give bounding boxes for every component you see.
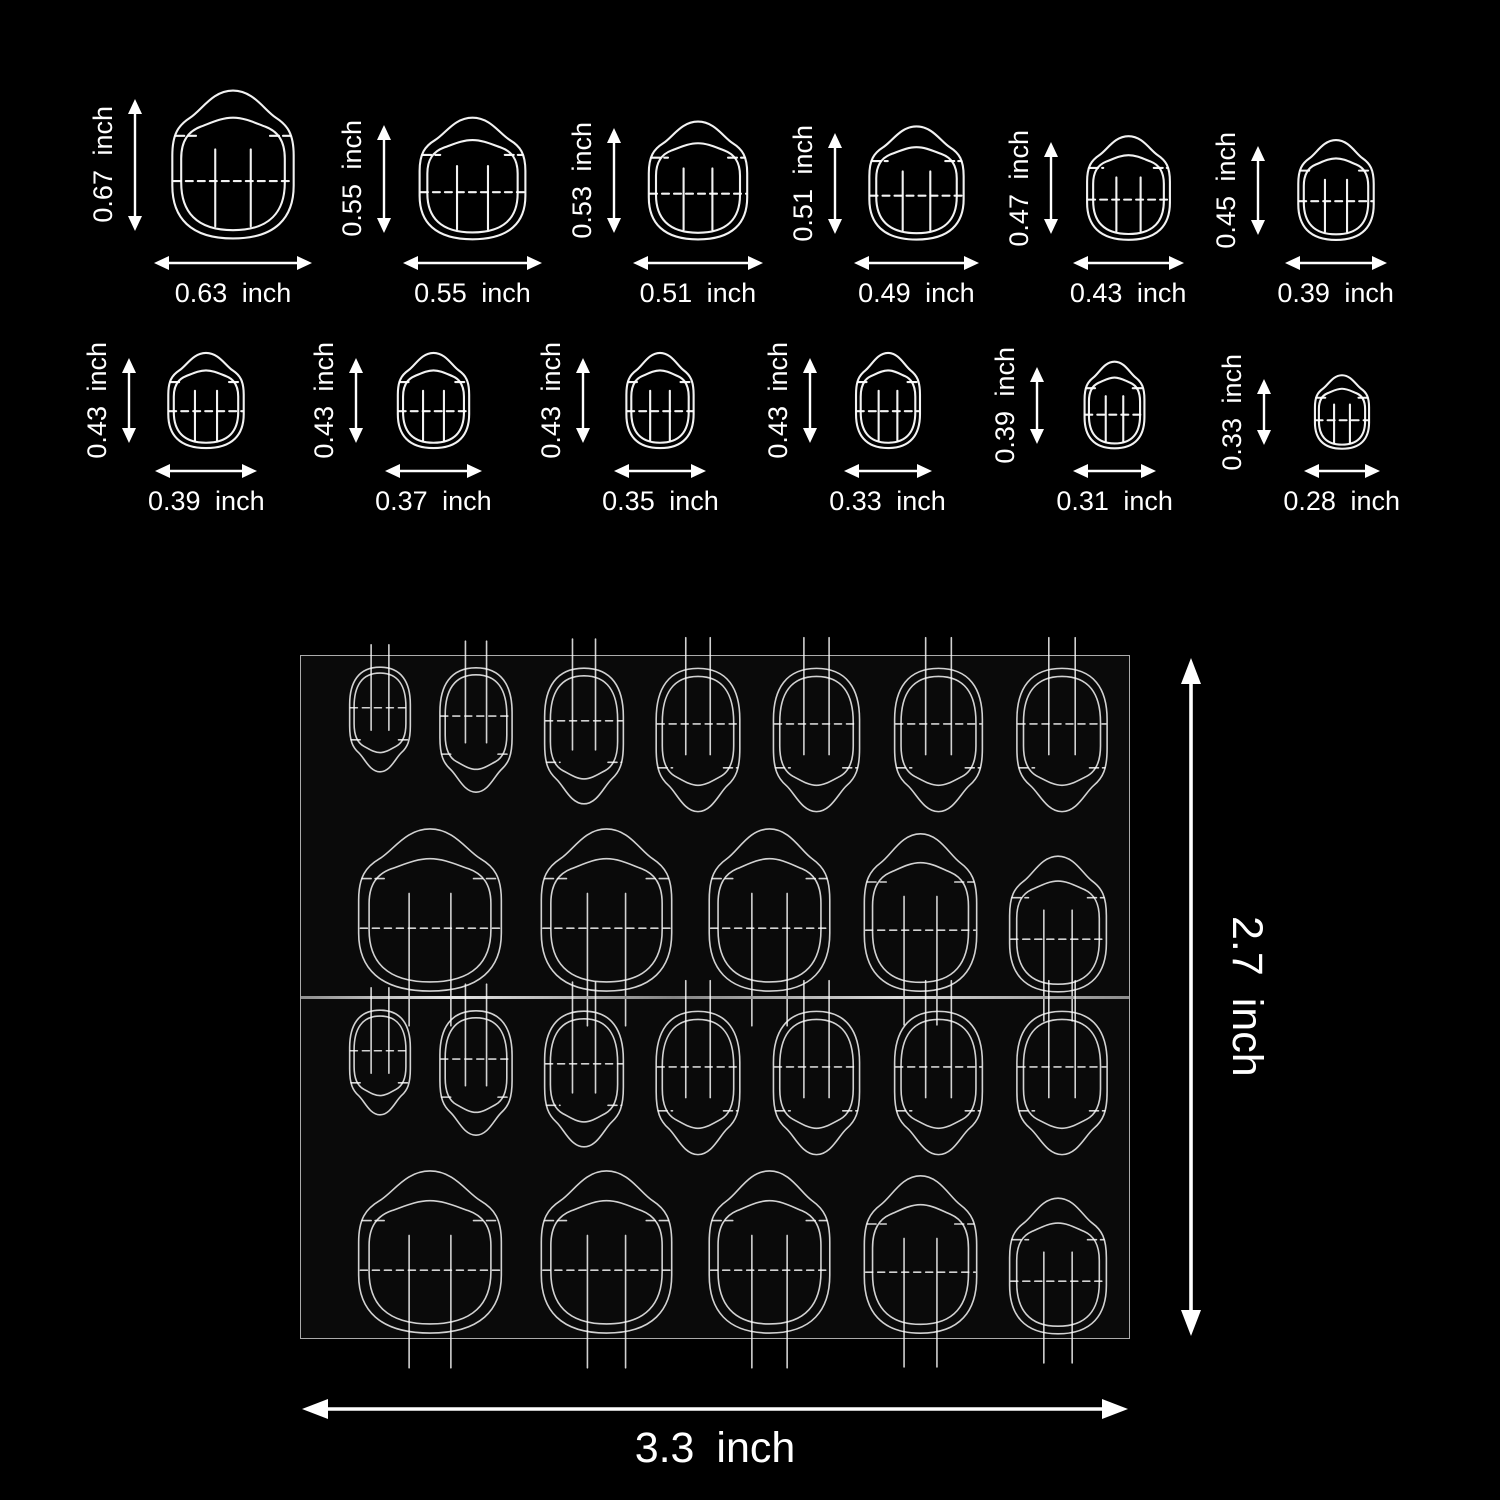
height-dimension-label: 0.51 inch: [788, 125, 819, 242]
height-dimension: 0.47 inch: [1004, 133, 1061, 243]
height-dimension: 0.55 inch: [337, 114, 394, 243]
horizontal-dimension-arrow-icon: [1073, 253, 1184, 273]
nail-size-diagram: 0.39 inch0.31 inch: [990, 359, 1173, 517]
height-dimension-label: 0.53 inch: [567, 122, 598, 239]
sheet-nail-tab-outline: [999, 1194, 1117, 1338]
vertical-dimension-arrow-icon: [1027, 367, 1047, 444]
sheet-nail-tab-outline: [999, 852, 1117, 996]
sheet-nail-tab-outline: [696, 824, 843, 996]
height-dimension: 0.39 inch: [990, 359, 1047, 451]
nail-size-diagram: 0.55 inch0.55 inch: [337, 114, 542, 309]
width-dimension-label: 0.39 inch: [1277, 278, 1394, 309]
horizontal-dimension-arrow-icon: [614, 461, 706, 481]
sheet-nail-tab-outline: [885, 1007, 992, 1159]
vertical-dimension-arrow-icon: [346, 358, 366, 443]
sheet-half: [301, 656, 1129, 996]
sheet-nail-tab-outline: [885, 664, 992, 816]
height-dimension: 0.53 inch: [567, 118, 624, 243]
height-dimension-label: 0.43 inch: [82, 342, 113, 459]
sheet-nail-tab-outline: [536, 664, 632, 808]
sheet-width-label: 3.3 inch: [300, 1424, 1130, 1473]
adhesive-sheet: [300, 655, 1130, 1339]
nail-tab-outline: [159, 86, 307, 243]
sheet-height-arrow: [1178, 658, 1204, 1336]
nail-tab-outline: [638, 118, 758, 243]
horizontal-dimension-arrow-icon: [154, 253, 312, 273]
nail-tab-outline: [859, 123, 974, 243]
height-dimension-label: 0.43 inch: [309, 342, 340, 459]
sheet-large-tabs-row: [343, 816, 1117, 996]
width-dimension: [385, 461, 482, 481]
sheet-nail-tab-outline: [852, 829, 989, 996]
nail-tab-outline: [1290, 137, 1382, 243]
nail-size-diagram: 0.47 inch0.43 inch: [1004, 133, 1187, 309]
vertical-dimension-arrow-icon: [1041, 142, 1061, 234]
sheet-nail-tab-outline: [647, 664, 749, 816]
height-dimension-label: 0.33 inch: [1217, 354, 1248, 471]
width-dimension-label: 0.43 inch: [1070, 278, 1187, 309]
nail-size-diagram: 0.43 inch0.39 inch: [82, 350, 265, 517]
horizontal-dimension-arrow-icon: [1285, 253, 1387, 273]
width-dimension: [155, 461, 257, 481]
height-dimension: 0.45 inch: [1211, 137, 1268, 243]
width-dimension-label: 0.55 inch: [414, 278, 531, 309]
width-dimension: [844, 461, 932, 481]
nail-size-diagram: 0.43 inch0.35 inch: [536, 350, 719, 517]
sheet-nail-tab-outline: [1007, 1007, 1117, 1159]
sheet-nail-tab-outline: [696, 1166, 843, 1338]
sheet-nail-tab-outline: [764, 664, 869, 816]
nail-size-diagram: 0.45 inch0.39 inch: [1211, 137, 1394, 309]
vertical-dimension-arrow-icon: [825, 133, 845, 234]
vertical-dimension-arrow-icon: [119, 358, 139, 443]
nail-tab-outline: [1078, 359, 1151, 451]
width-dimension: [1073, 253, 1184, 273]
vertical-dimension-arrow-icon: [374, 125, 394, 233]
nail-tab-outline: [408, 114, 537, 243]
sheet-nail-tab-outline: [343, 664, 417, 775]
height-dimension: 0.33 inch: [1217, 373, 1274, 451]
sheet-nail-tab-outline: [343, 1007, 417, 1118]
height-dimension-label: 0.47 inch: [1004, 130, 1035, 247]
height-dimension: 0.43 inch: [82, 350, 139, 451]
nail-tab-outline: [160, 350, 252, 451]
sheet-width-arrow: [302, 1396, 1128, 1422]
nail-tab-outline: [1309, 373, 1375, 451]
vertical-dimension-arrow-icon: [1248, 146, 1268, 235]
nail-size-diagram: 0.51 inch0.49 inch: [788, 123, 979, 309]
height-dimension-label: 0.67 inch: [88, 106, 119, 223]
vertical-dimension-arrow-icon: [604, 128, 624, 233]
horizontal-dimension-arrow-icon: [385, 461, 482, 481]
sheet-nail-tab-outline: [852, 1171, 989, 1338]
sheet-half: [301, 999, 1129, 1339]
sheet-large-tabs-row: [343, 1159, 1117, 1339]
width-dimension: [154, 253, 312, 273]
sheet-nail-tab-outline: [527, 1166, 686, 1338]
sheet-nail-tab-outline: [432, 664, 520, 796]
size-chart-row-bottom: 0.43 inch0.39 inch0.43 inch0.37 inch0.43…: [82, 350, 1400, 517]
width-dimension-label: 0.35 inch: [602, 486, 719, 517]
horizontal-dimension-arrow-icon: [633, 253, 763, 273]
horizontal-dimension-arrow-icon: [1304, 461, 1380, 481]
nail-size-diagram: 0.53 inch0.51 inch: [567, 118, 763, 309]
height-dimension: 0.51 inch: [788, 123, 845, 243]
horizontal-dimension-arrow-icon: [854, 253, 979, 273]
width-dimension: [854, 253, 979, 273]
width-dimension-label: 0.31 inch: [1056, 486, 1173, 517]
nail-size-diagram: 0.43 inch0.33 inch: [763, 350, 946, 517]
width-dimension-label: 0.49 inch: [858, 278, 975, 309]
height-dimension-label: 0.45 inch: [1211, 132, 1242, 249]
horizontal-dimension-arrow-icon: [155, 461, 257, 481]
nail-size-diagram: 0.43 inch0.37 inch: [309, 350, 492, 517]
width-dimension-label: 0.63 inch: [175, 278, 292, 309]
horizontal-dimension-arrow-icon: [1073, 461, 1156, 481]
horizontal-dimension-arrow-icon: [844, 461, 932, 481]
sheet-nail-tab-outline: [527, 824, 686, 996]
width-dimension: [633, 253, 763, 273]
nail-tab-outline: [390, 350, 477, 451]
width-dimension: [1285, 253, 1387, 273]
sheet-nail-tab-outline: [1007, 664, 1117, 816]
vertical-dimension-arrow-icon: [1178, 658, 1204, 1336]
nail-size-diagram: 0.33 inch0.28 inch: [1217, 373, 1400, 517]
height-dimension-label: 0.43 inch: [763, 342, 794, 459]
sheet-nail-tab-outline: [647, 1007, 749, 1159]
height-dimension-label: 0.55 inch: [337, 120, 368, 237]
width-dimension: [1304, 461, 1380, 481]
sheet-small-tabs-row: [343, 1007, 1117, 1159]
sheet-nail-tab-outline: [764, 1007, 869, 1159]
width-dimension-label: 0.28 inch: [1283, 486, 1400, 517]
nail-tab-outline: [1078, 133, 1179, 243]
width-dimension-label: 0.33 inch: [829, 486, 946, 517]
width-dimension-label: 0.37 inch: [375, 486, 492, 517]
sheet-nail-tab-outline: [343, 1166, 517, 1338]
sheet-nail-tab-outline: [432, 1007, 520, 1139]
horizontal-dimension-arrow-icon: [302, 1396, 1128, 1422]
vertical-dimension-arrow-icon: [800, 358, 820, 443]
height-dimension-label: 0.39 inch: [990, 347, 1021, 464]
sheet-nail-tab-outline: [343, 824, 517, 996]
width-dimension: [403, 253, 542, 273]
nail-tab-outline: [849, 350, 927, 451]
sheet-small-tabs-row: [343, 664, 1117, 816]
horizontal-dimension-arrow-icon: [403, 253, 542, 273]
size-chart-row-top: 0.67 inch0.63 inch0.55 inch0.55 inch0.53…: [88, 86, 1394, 309]
nail-tab-outline: [619, 350, 701, 451]
width-dimension: [1073, 461, 1156, 481]
width-dimension-label: 0.39 inch: [148, 486, 265, 517]
height-dimension: 0.43 inch: [536, 350, 593, 451]
vertical-dimension-arrow-icon: [1254, 379, 1274, 445]
product-dimension-diagram: 0.67 inch0.63 inch0.55 inch0.55 inch0.53…: [0, 0, 1500, 1500]
width-dimension: [614, 461, 706, 481]
sheet-height-label: 2.7 inch: [1222, 916, 1271, 1077]
vertical-dimension-arrow-icon: [573, 358, 593, 443]
width-dimension-label: 0.51 inch: [640, 278, 757, 309]
height-dimension: 0.67 inch: [88, 86, 145, 243]
sheet-height-dimension: 2.7 inch: [1222, 655, 1271, 1337]
height-dimension-label: 0.43 inch: [536, 342, 567, 459]
height-dimension: 0.43 inch: [763, 350, 820, 451]
nail-size-diagram: 0.67 inch0.63 inch: [88, 86, 312, 309]
sheet-nail-tab-outline: [536, 1007, 632, 1151]
height-dimension: 0.43 inch: [309, 350, 366, 451]
vertical-dimension-arrow-icon: [125, 99, 145, 231]
